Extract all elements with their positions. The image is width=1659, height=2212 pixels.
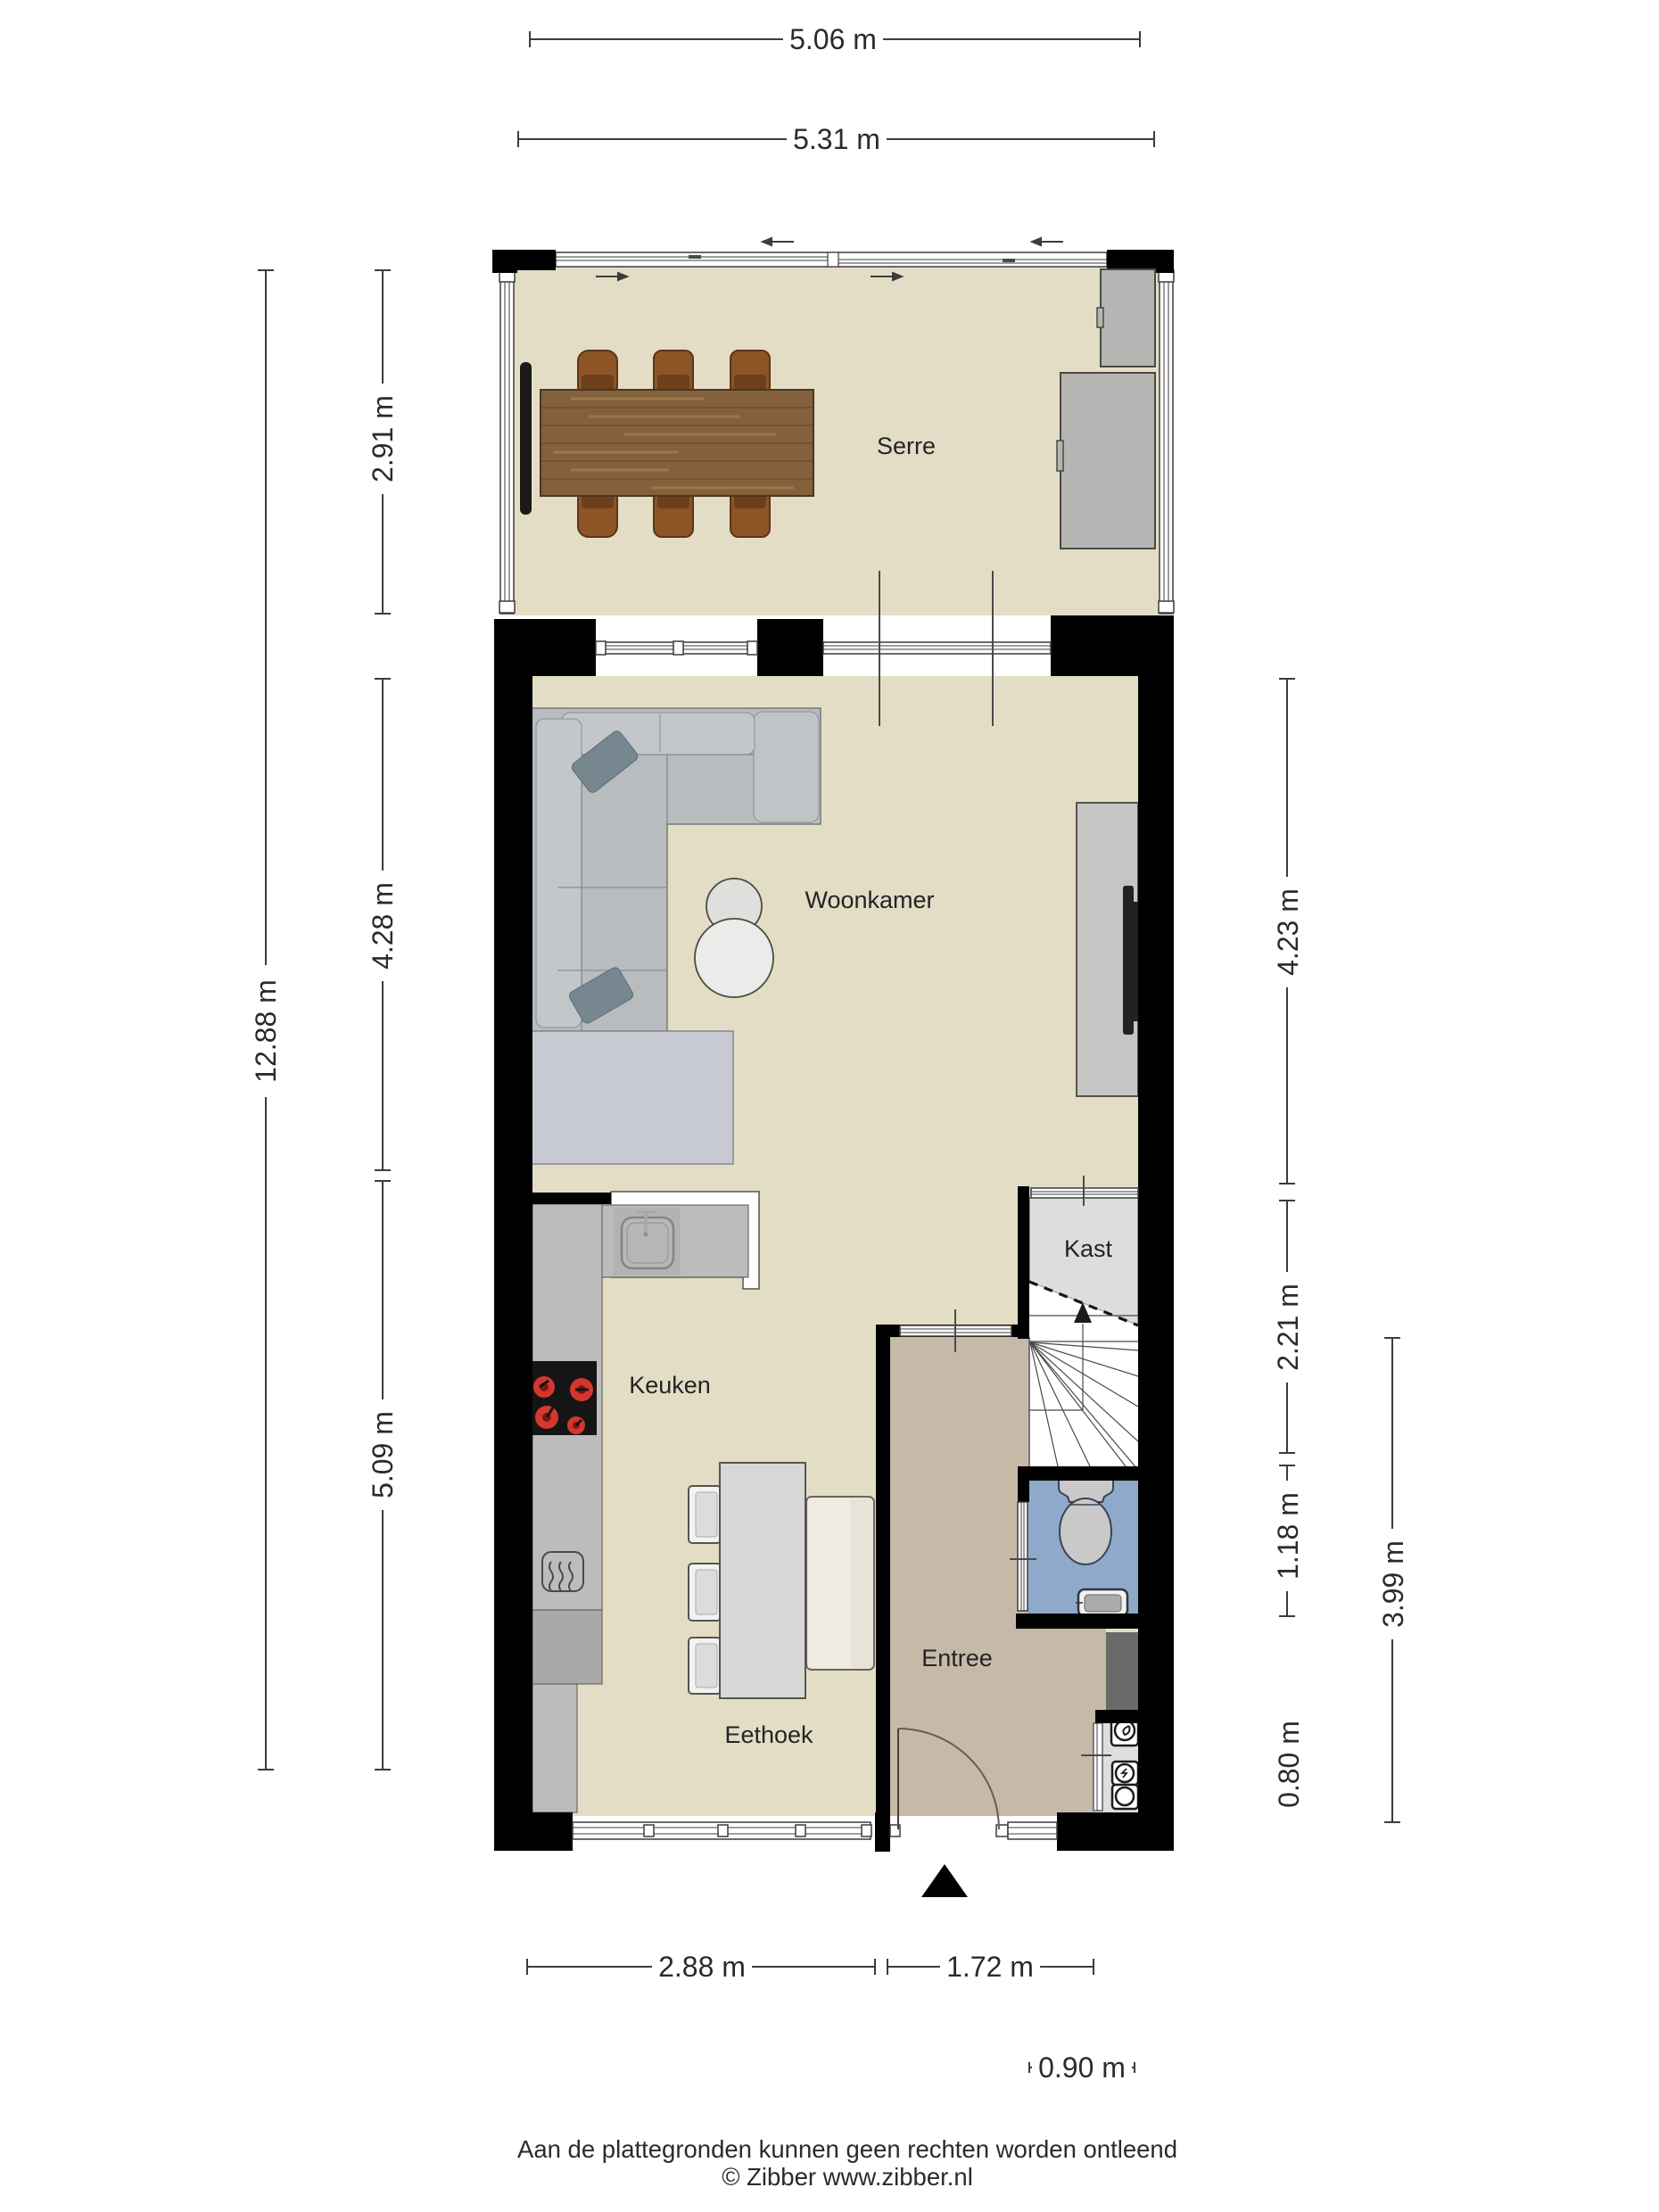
svg-text:Kast: Kast: [1064, 1235, 1113, 1262]
svg-text:1.18 m: 1.18 m: [1272, 1492, 1304, 1580]
svg-text:© Zibber www.zibber.nl: © Zibber www.zibber.nl: [722, 2163, 973, 2191]
svg-text:Eethoek: Eethoek: [724, 1721, 813, 1748]
svg-text:0.90 m: 0.90 m: [1038, 2051, 1126, 2084]
svg-text:2.91 m: 2.91 m: [367, 395, 399, 483]
svg-text:4.23 m: 4.23 m: [1272, 888, 1304, 976]
svg-text:2.88 m: 2.88 m: [658, 1951, 746, 1983]
svg-text:2.21 m: 2.21 m: [1272, 1283, 1304, 1371]
svg-text:1.72 m: 1.72 m: [946, 1951, 1034, 1983]
svg-text:5.31 m: 5.31 m: [793, 123, 880, 155]
svg-text:Aan de plattegronden kunnen ge: Aan de plattegronden kunnen geen rechten…: [517, 2135, 1177, 2163]
svg-text:4.28 m: 4.28 m: [367, 882, 399, 970]
svg-text:12.88 m: 12.88 m: [250, 979, 282, 1083]
svg-text:Woonkamer: Woonkamer: [805, 887, 934, 913]
svg-text:5.06 m: 5.06 m: [789, 23, 877, 55]
svg-text:0.80 m: 0.80 m: [1273, 1721, 1305, 1808]
svg-text:Keuken: Keuken: [629, 1372, 711, 1399]
svg-text:Entree: Entree: [921, 1645, 993, 1671]
svg-text:Serre: Serre: [877, 433, 936, 459]
svg-text:3.99 m: 3.99 m: [1377, 1540, 1409, 1628]
svg-text:5.09 m: 5.09 m: [367, 1411, 399, 1498]
